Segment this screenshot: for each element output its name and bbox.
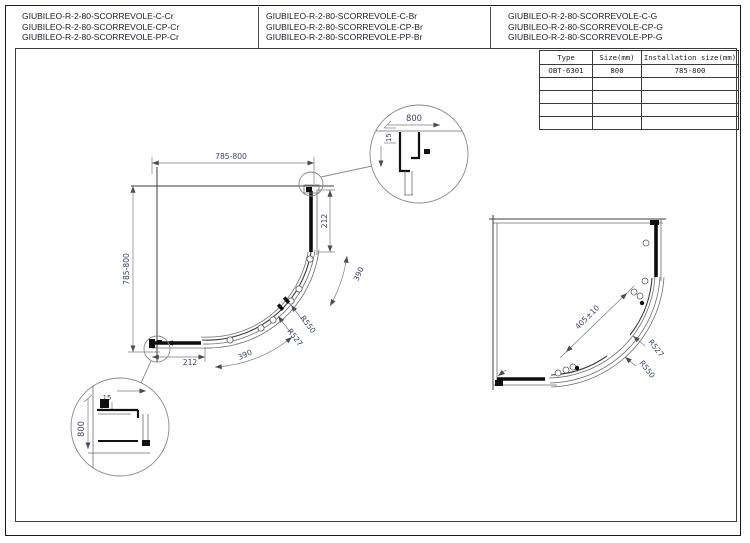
dim-label-arc-upper: 390 [352,265,366,282]
curved-door-track [201,250,319,348]
wall-profile-section [88,399,150,453]
left-plan-view: 785-800 785-800 212 212 [122,152,372,383]
dim-label-radius-inner: R527 [646,338,665,359]
dim-label-panel-bottom: 212 [183,358,198,367]
dim-label-arc-lower: 390 [237,348,254,362]
dim-label-radius-inner: R527 [285,327,304,348]
dim-label-top-width: 785-800 [215,152,247,161]
right-plan-view: 405±10 R527 R550 [489,215,666,390]
technical-drawing: 785-800 785-800 212 212 [0,0,750,543]
drawing-sheet: GIUBILEO-R-2-80-SCORREVOLE-C-Cr GIUBILEO… [0,0,750,543]
dim-label-detail-height: 800 [76,421,86,437]
dim-label-radius-outer: R550 [298,314,317,335]
detail-view-bottom: 800 15 [71,378,169,476]
dim-label-detail-width: 800 [406,113,422,123]
dim-label-left-height: 785-800 [122,253,131,285]
dim-label-panel-right: 212 [320,214,329,229]
door-handle [640,301,644,305]
door-rollers [555,240,649,376]
dim-label-radius-outer: R550 [637,359,656,380]
dim-label-door-opening: 405±10 [573,303,601,331]
wall-profile-section [400,132,430,195]
detail-view-top: 800 15 [370,105,468,203]
door-handle [575,366,579,370]
dim-label-detail-depth: 15 [385,133,393,142]
